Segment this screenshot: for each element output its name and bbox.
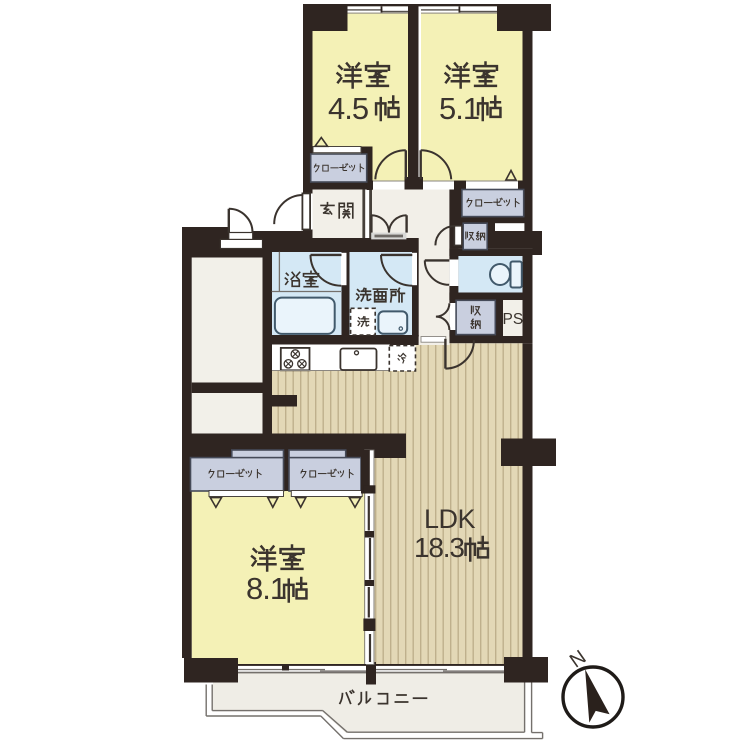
svg-text:4.5: 4.5 xyxy=(328,91,368,126)
svg-text:5.1: 5.1 xyxy=(439,91,479,126)
svg-text:8.1: 8.1 xyxy=(246,571,286,606)
svg-text:18.3: 18.3 xyxy=(414,532,464,563)
svg-text:LDK: LDK xyxy=(424,504,476,534)
svg-text:PS: PS xyxy=(503,311,524,328)
